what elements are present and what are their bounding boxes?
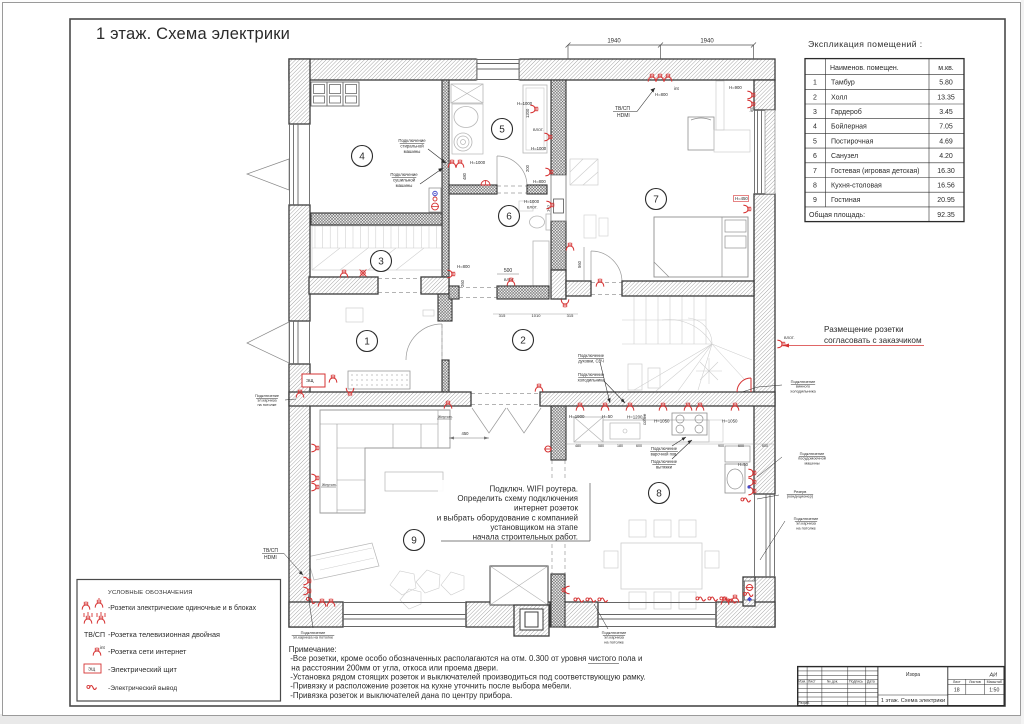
svg-text:ВЛОГ.: ВЛОГ.: [527, 206, 538, 210]
svg-text:-Розетка сети интернет: -Розетка сети интернет: [108, 647, 187, 656]
svg-text:92.35: 92.35: [937, 212, 955, 219]
svg-text:H=800: H=800: [655, 92, 668, 97]
svg-text:7: 7: [813, 168, 817, 175]
svg-text:-Установка рядом стоящих розет: -Установка рядом стоящих розеток и выклю…: [290, 672, 645, 681]
svg-text:-Электрический вывод: -Электрический вывод: [108, 684, 177, 692]
svg-text:1940: 1940: [700, 39, 714, 45]
svg-text:Лист: Лист: [953, 680, 961, 684]
svg-text:Экспликация помещений :: Экспликация помещений :: [808, 39, 923, 49]
svg-text:480: 480: [462, 172, 467, 180]
svg-text:вытяжки: вытяжки: [656, 464, 672, 469]
svg-text:18: 18: [954, 688, 960, 694]
svg-text:315: 315: [499, 313, 506, 318]
svg-text:560: 560: [577, 260, 582, 268]
svg-text:машины: машины: [404, 149, 421, 154]
svg-text:900: 900: [718, 444, 724, 448]
svg-text:2: 2: [813, 94, 817, 101]
svg-text:эл.карниза: эл.карниза: [257, 399, 277, 403]
svg-text:H=800: H=800: [457, 264, 470, 269]
svg-text:4: 4: [813, 124, 817, 131]
svg-text:580: 580: [598, 444, 604, 448]
svg-text:установщиком на этапе: установщиком на этапе: [490, 523, 578, 532]
svg-text:int: int: [749, 107, 754, 112]
svg-text:260: 260: [460, 279, 465, 287]
svg-text:1940: 1940: [607, 39, 621, 45]
svg-text:на потолке: на потолке: [604, 639, 624, 644]
svg-text:Гардероб: Гардероб: [831, 108, 862, 116]
svg-text:стиральной: стиральной: [400, 143, 424, 148]
svg-text:H=450: H=450: [735, 196, 748, 201]
svg-text:180: 180: [617, 444, 623, 448]
svg-text:Подключ. WIFI роутера.: Подключ. WIFI роутера.: [490, 485, 578, 494]
svg-text:Общая площадь:: Общая площадь:: [809, 211, 865, 219]
svg-text:500: 500: [504, 268, 513, 274]
svg-text:на расстоянии 200мм от угла, о: на расстоянии 200мм от угла, откоса или …: [291, 663, 498, 672]
svg-text:Гостиная: Гостиная: [831, 197, 861, 204]
svg-text:Листов: Листов: [969, 680, 981, 684]
svg-text:8: 8: [813, 183, 817, 190]
svg-text:16.56: 16.56: [937, 183, 955, 190]
svg-text:Определить схему подключения: Определить схему подключения: [457, 494, 578, 503]
svg-text:HDMI: HDMI: [264, 555, 277, 561]
svg-text:1200: 1200: [525, 108, 530, 118]
svg-text:на потолке: на потолке: [257, 403, 276, 407]
svg-text:машины: машины: [804, 460, 819, 465]
svg-text:H=1900: H=1900: [569, 414, 585, 419]
svg-text:сушильной: сушильной: [393, 177, 416, 182]
svg-text:315: 315: [567, 313, 574, 318]
svg-text:Жнутоm.: Жнутоm.: [438, 415, 453, 419]
svg-text:Разраб.: Разраб.: [799, 701, 811, 705]
svg-text:600: 600: [762, 444, 768, 448]
svg-text:2: 2: [520, 336, 526, 347]
svg-text:200: 200: [525, 164, 530, 172]
svg-text:H=900: H=900: [729, 85, 742, 90]
svg-text:ТВ/СП: ТВ/СП: [84, 632, 105, 639]
svg-text:H=1000: H=1000: [531, 146, 547, 151]
svg-text:холодильника: холодильника: [790, 388, 816, 393]
svg-text:согласовать с заказчиком: согласовать с заказчиком: [824, 336, 922, 345]
svg-text:№ док.: № док.: [827, 680, 838, 684]
svg-text:6: 6: [813, 153, 817, 160]
svg-text:Лист: Лист: [808, 680, 816, 684]
svg-text:и выбрать оборудование с компа: и выбрать оборудование с компанией: [437, 513, 578, 522]
svg-text:H=1000: H=1000: [470, 160, 486, 165]
svg-text:5.80: 5.80: [939, 80, 953, 87]
svg-text:600: 600: [738, 444, 744, 448]
svg-text:H=1000: H=1000: [524, 199, 540, 204]
svg-text:H=1050: H=1050: [654, 419, 670, 424]
svg-text:9: 9: [411, 536, 417, 547]
svg-text:1010: 1010: [532, 313, 542, 318]
svg-text:м.кв.: м.кв.: [938, 65, 954, 72]
svg-text:Тамбур: Тамбур: [831, 79, 855, 87]
svg-text:Гостевая (игровая детская): Гостевая (игровая детская): [831, 168, 919, 175]
svg-text:int: int: [674, 86, 680, 91]
svg-text:1: 1: [813, 80, 817, 87]
svg-text:интернет розеток: интернет розеток: [514, 504, 578, 513]
svg-text:-Привязка розеток и выключател: -Привязка розеток и выключателей дана по…: [290, 691, 512, 700]
svg-text:Подключение: Подключение: [651, 459, 678, 464]
svg-text:Кухня-столовая: Кухня-столовая: [831, 183, 882, 190]
svg-text:Подпись: Подпись: [849, 680, 863, 684]
svg-text:Подключение: Подключение: [578, 372, 605, 377]
svg-text:машины: машины: [396, 183, 413, 188]
svg-text:HDMI: HDMI: [617, 113, 630, 119]
svg-text:6: 6: [506, 212, 512, 223]
svg-text:4.69: 4.69: [939, 138, 953, 145]
svg-text:ВЛОГ.: ВЛОГ.: [784, 336, 795, 340]
svg-text:начала строительных работ.: начала строительных работ.: [473, 533, 578, 542]
svg-text:варочной пов.: варочной пов.: [651, 451, 678, 456]
svg-text:Примечание:: Примечание:: [289, 645, 337, 654]
svg-text:5: 5: [499, 125, 505, 136]
svg-text:-Привязку и расположение розет: -Привязку и расположение розеток на кухн…: [290, 682, 571, 691]
svg-text:Подключение: Подключение: [255, 394, 279, 398]
svg-text:13.35: 13.35: [937, 94, 955, 101]
svg-text:ТВ/СП: ТВ/СП: [615, 106, 630, 112]
svg-text:Изора: Изора: [906, 672, 920, 678]
svg-text:H=1050: H=1050: [722, 419, 738, 424]
svg-text:Подключение: Подключение: [390, 172, 418, 177]
svg-text:Наименов. помещен.: Наименов. помещен.: [830, 65, 899, 72]
svg-text:-Электрический щит: -Электрический щит: [108, 665, 177, 674]
svg-text:-Розетка телевизионная двойная: -Розетка телевизионная двойная: [108, 630, 220, 639]
svg-text:Подключение: Подключение: [578, 353, 605, 358]
svg-text:УСЛОВНЫЕ ОБОЗНАЧЕНИЯ: УСЛОВНЫЕ ОБОЗНАЧЕНИЯ: [108, 590, 193, 596]
svg-text:на потолке: на потолке: [796, 525, 816, 530]
svg-text:coffee: coffee: [642, 413, 647, 425]
svg-text:Бойлерная: Бойлерная: [831, 123, 867, 131]
svg-text:450: 450: [462, 431, 470, 436]
svg-text:int: int: [100, 645, 106, 650]
svg-text:ЭЩ: ЭЩ: [306, 378, 314, 383]
svg-text:8: 8: [656, 489, 662, 500]
svg-text:5: 5: [813, 138, 817, 145]
svg-text:1:50: 1:50: [989, 688, 999, 694]
svg-text:1 этаж. Схема электрики: 1 этаж. Схема электрики: [881, 698, 945, 704]
svg-text:1: 1: [364, 337, 370, 348]
svg-text:Подключение: Подключение: [398, 138, 426, 143]
svg-text:3: 3: [813, 109, 817, 116]
svg-text:H=50: H=50: [602, 414, 613, 419]
svg-text:-Розетки электрические одиночн: -Розетки электрические одиночные и в бло…: [108, 604, 257, 612]
svg-text:600: 600: [636, 444, 642, 448]
svg-text:ЭЩ: ЭЩ: [88, 667, 95, 672]
svg-text:Дата: Дата: [867, 680, 875, 684]
svg-text:7: 7: [653, 195, 659, 206]
svg-text:H=800: H=800: [533, 179, 546, 184]
svg-text:3.45: 3.45: [939, 109, 953, 116]
svg-text:ТВ/СП: ТВ/СП: [263, 548, 278, 554]
svg-text:ВЛОГ.: ВЛОГ.: [533, 128, 544, 132]
svg-text:Постирочная: Постирочная: [831, 138, 874, 145]
svg-text:холодильника: холодильника: [578, 377, 605, 382]
svg-text:Жнутоm.: Жнутоm.: [322, 483, 337, 487]
svg-text:-Все розетки, кроме особо обоз: -Все розетки, кроме особо обозначенных р…: [290, 654, 642, 663]
svg-text:7.05: 7.05: [939, 124, 953, 131]
svg-text:9: 9: [813, 197, 817, 204]
svg-text:Подключение: Подключение: [651, 446, 678, 451]
svg-text:20.95: 20.95: [937, 197, 955, 204]
svg-text:480: 480: [575, 444, 581, 448]
svg-text:Изм.: Изм.: [799, 680, 807, 684]
svg-text:1 этаж. Схема электрики: 1 этаж. Схема электрики: [96, 25, 290, 43]
svg-text:4: 4: [359, 152, 365, 163]
svg-text:H=1200: H=1200: [627, 415, 643, 420]
svg-text:4.20: 4.20: [939, 153, 953, 160]
svg-text:16.30: 16.30: [937, 168, 955, 175]
svg-text:Холл: Холл: [831, 94, 848, 101]
svg-text:Санузел: Санузел: [831, 153, 858, 160]
svg-text:3: 3: [378, 257, 384, 268]
svg-text:АИ: АИ: [989, 673, 998, 679]
svg-text:Размещение розетки: Размещение розетки: [824, 325, 904, 334]
svg-text:Масштаб: Масштаб: [987, 680, 1002, 684]
svg-text:H=50: H=50: [738, 462, 749, 467]
